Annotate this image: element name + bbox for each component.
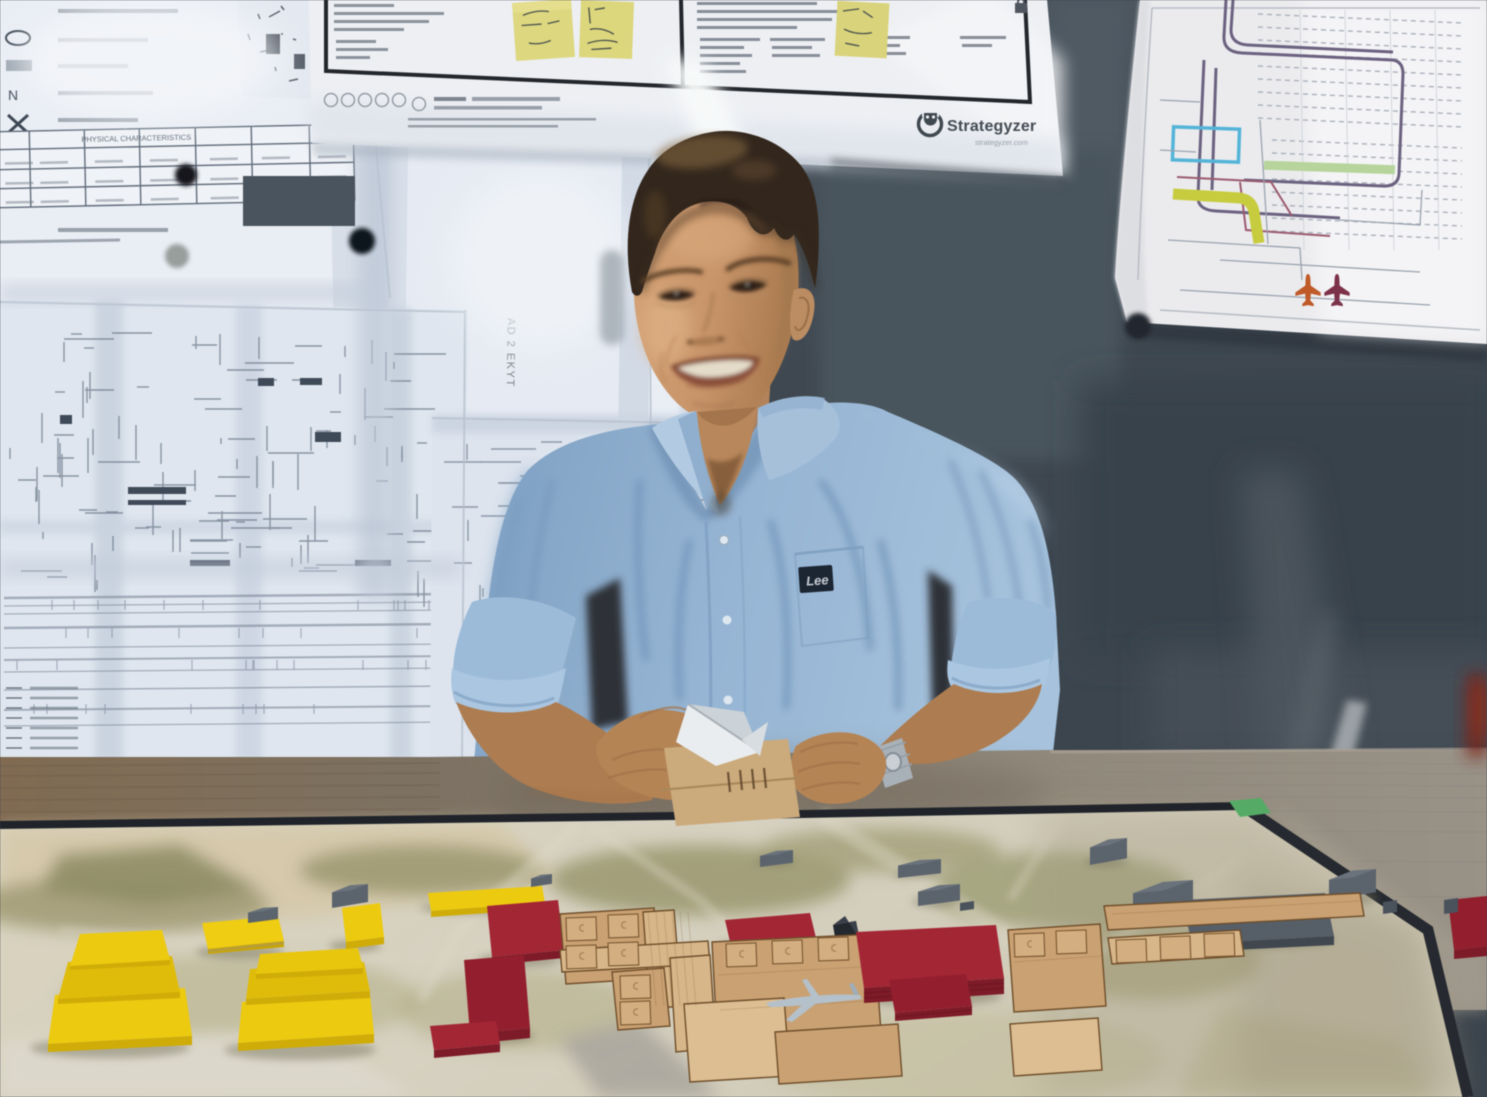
svg-text:Lee: Lee — [806, 572, 829, 589]
svg-text:strategyzer.com: strategyzer.com — [975, 138, 1028, 147]
svg-text:N: N — [8, 87, 18, 103]
svg-text:Strategyzer: Strategyzer — [947, 118, 1036, 135]
